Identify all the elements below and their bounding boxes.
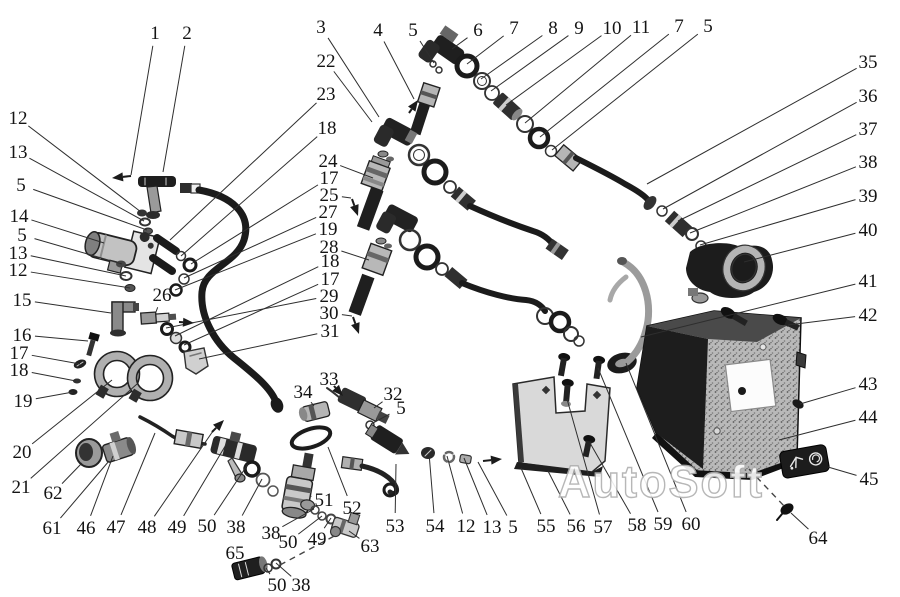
hydraulic-booster [686,239,773,303]
callout-label-36: 36 [859,86,878,107]
callout-label-54: 54 [426,516,446,537]
callout-label-49: 49 [168,517,187,538]
callout-label-49: 49 [308,529,327,550]
direction-arrow-shaft [352,199,354,206]
callout-label-42: 42 [859,305,878,326]
callout-label-21: 21 [12,477,31,498]
callout-label-5: 5 [703,16,713,37]
main-hose-left [180,183,286,415]
callout-leader-13 [29,158,144,221]
callout-label-5: 5 [508,517,518,538]
direction-arrow-shaft [483,460,491,461]
drain-valve-cluster [210,427,278,496]
direction-arrow-head-0 [112,172,123,181]
callout-label-2: 2 [182,23,192,44]
callout-label-65: 65 [226,543,245,564]
fitting-chain-top [408,22,706,251]
direction-arrow-shaft [334,386,336,388]
callout-label-61: 61 [43,518,62,539]
hose-clamps [95,352,173,403]
callout-label-64: 64 [809,528,829,549]
callout-label-23: 23 [317,84,336,105]
callout-label-4: 4 [373,20,383,41]
callout-label-57: 57 [594,517,613,538]
callout-leader-43 [800,388,856,404]
direction-arrow-shaft [409,109,412,113]
callout-leader-13 [464,458,487,515]
callout-leader-38 [690,167,856,233]
callout-label-50: 50 [268,575,287,596]
callout-leader-64 [791,513,808,529]
callout-leader-8 [481,36,542,79]
callout-label-19: 19 [14,391,33,412]
callout-label-31: 31 [321,321,340,342]
callout-label-5: 5 [408,20,418,41]
direction-arrow-head-4 [183,318,194,327]
callout-label-18: 18 [10,360,29,381]
callout-label-40: 40 [859,220,878,241]
callout-label-59: 59 [654,514,673,535]
callout-label-7: 7 [509,18,519,39]
thin-hose [140,417,205,448]
callout-label-38: 38 [227,517,246,538]
callout-label-12: 12 [9,260,28,281]
callout-label-5: 5 [396,398,406,419]
callout-label-20: 20 [13,442,32,463]
callout-leader-62 [62,463,82,484]
callout-label-58: 58 [628,515,647,536]
callout-label-9: 9 [574,18,584,39]
callout-leader-18 [175,267,318,336]
callout-label-51: 51 [315,490,334,511]
callout-label-15: 15 [13,290,32,311]
callout-label-5: 5 [16,175,26,196]
filler-hose [610,257,649,362]
callout-label-13: 13 [483,517,502,538]
callout-leader-61 [60,461,109,518]
callout-leader-25 [342,197,351,198]
callout-label-10: 10 [603,18,622,39]
callout-leader-18 [32,372,76,381]
callout-label-41: 41 [859,271,878,292]
callout-leader-4 [384,42,414,99]
callout-leader-15 [35,302,111,313]
callout-label-43: 43 [859,374,878,395]
callout-label-39: 39 [859,186,878,207]
direction-arrow-head-1 [408,100,418,112]
callout-leader-5 [33,189,147,230]
callout-label-38: 38 [859,152,878,173]
callout-leader-26 [156,307,158,312]
callout-label-22: 22 [317,51,336,72]
callout-label-7: 7 [674,16,684,37]
callout-label-38: 38 [292,575,311,596]
direction-arrow-head-6 [491,456,502,465]
callout-leader-36 [663,102,857,209]
small-bracket [184,348,208,374]
callout-leader-12 [31,272,130,288]
callout-leader-38 [242,479,262,516]
callout-label-12: 12 [9,108,28,129]
callout-leader-52 [328,447,347,496]
callout-leader-19 [36,392,73,399]
callout-label-60: 60 [682,514,701,535]
callout-leader-7 [540,34,669,137]
callout-label-8: 8 [548,18,558,39]
callout-label-46: 46 [77,518,96,539]
exploded-parts-diagram: 1232245678910117535363738394041424344456… [0,0,900,597]
callout-label-63: 63 [361,536,380,557]
callout-label-53: 53 [386,516,405,537]
callout-leader-16 [35,336,88,341]
bolt-and-small-parts [69,332,100,395]
grommet-and-fitting [76,427,138,467]
callout-label-11: 11 [632,17,650,38]
washer-trio [162,324,191,353]
callout-leader-53 [395,464,396,513]
watermark-text: AutoSoft [558,456,764,507]
callout-leader-28 [341,251,369,260]
callout-label-37: 37 [859,119,878,140]
inlet-fitting [141,311,177,324]
callout-label-6: 6 [473,20,483,41]
callout-label-12: 12 [457,516,476,537]
callout-label-18: 18 [318,118,337,139]
callout-leader-27 [184,217,316,278]
callout-label-62: 62 [44,483,63,504]
callout-leader-12 [28,126,141,212]
callout-label-56: 56 [567,516,586,537]
callout-leader-17 [191,185,318,264]
callout-label-3: 3 [316,17,326,38]
callout-label-55: 55 [537,516,556,537]
callout-label-34: 34 [294,382,314,403]
callout-leader-17 [32,355,80,364]
callout-label-35: 35 [859,52,878,73]
callout-leader-18 [181,137,317,256]
callout-label-14: 14 [10,206,30,227]
callout-label-50: 50 [279,532,298,553]
elbow-pipe [110,302,139,337]
callout-leader-54 [429,453,434,513]
direction-arrow-shaft [123,176,131,177]
callout-label-13: 13 [9,142,28,163]
callout-leader-3 [328,38,379,117]
callout-leader-50 [214,464,248,515]
callout-leader-2 [163,46,185,172]
callout-label-44: 44 [859,407,879,428]
callout-leader-45 [828,467,857,475]
callout-label-48: 48 [138,517,157,538]
callout-leader-39 [700,200,856,245]
callout-leader-1 [131,46,153,175]
callout-leader-5 [552,34,698,150]
direction-arrow-shaft [353,317,355,324]
hose-53-group [341,421,471,496]
callout-label-47: 47 [107,517,126,538]
callout-label-52: 52 [343,498,362,519]
callout-label-45: 45 [860,469,879,490]
fitting-chain-middle [349,116,584,346]
callout-label-50: 50 [198,516,217,537]
direction-arrow-head-3 [351,322,359,334]
callout-leader-35 [647,68,857,184]
callout-leader-5 [478,462,507,516]
parts-diagram-page: 1232245678910117535363738394041424344456… [0,0,900,597]
direction-arrow-head-2 [350,204,358,216]
callout-leader-12 [447,456,463,513]
callout-leader-30 [342,315,352,316]
callout-label-1: 1 [150,23,160,44]
callout-leader-55 [521,468,541,514]
callout-label-26: 26 [153,285,172,306]
direction-arrow-shaft [212,428,216,432]
